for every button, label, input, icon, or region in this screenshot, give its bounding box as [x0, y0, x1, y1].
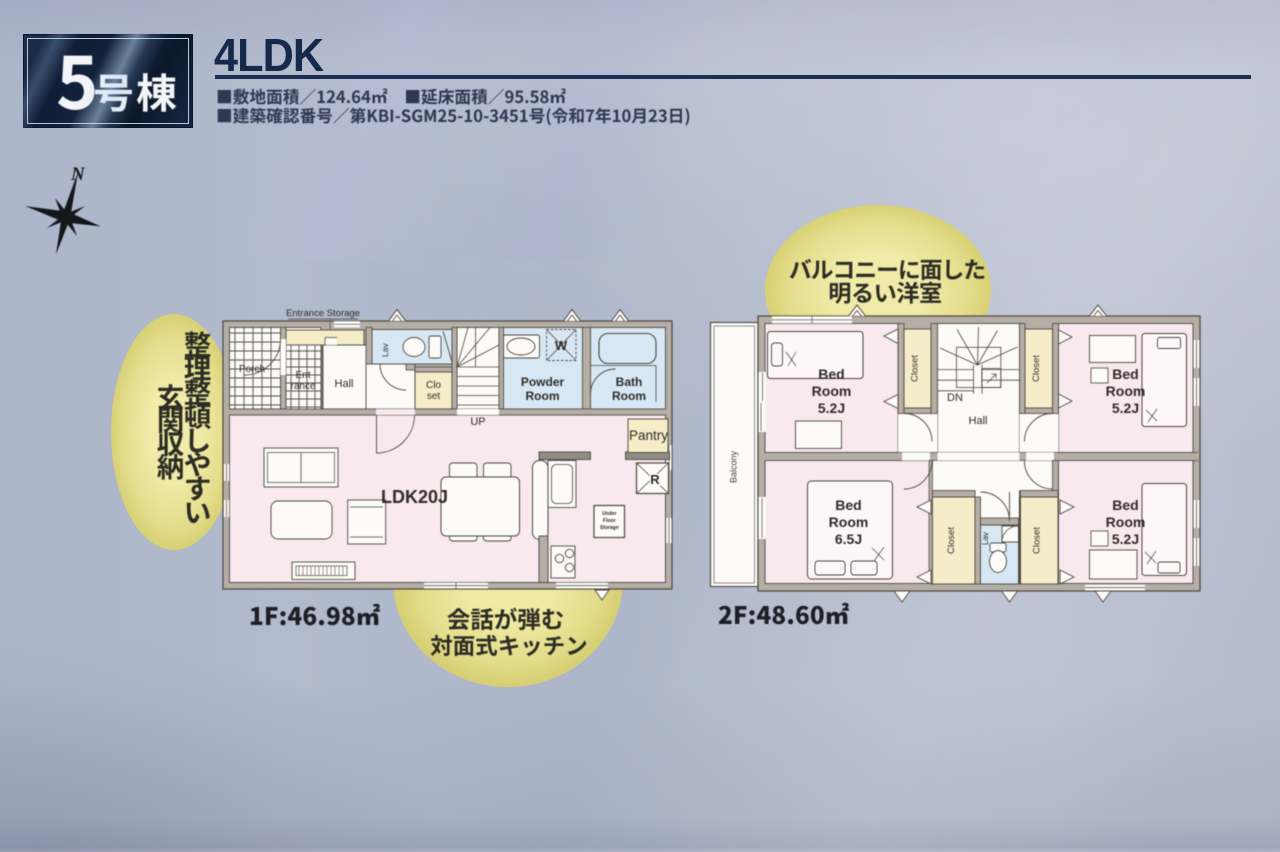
svg-text:Room: Room	[829, 514, 869, 530]
svg-text:rance: rance	[290, 381, 315, 392]
svg-text:5.2J: 5.2J	[818, 400, 845, 416]
svg-text:Porch: Porch	[239, 364, 265, 375]
svg-text:UP: UP	[470, 416, 485, 428]
svg-text:Bath: Bath	[616, 375, 643, 389]
svg-text:Hall: Hall	[335, 378, 354, 390]
svg-text:Lav: Lav	[380, 343, 390, 357]
svg-text:Closet: Closet	[1031, 355, 1042, 382]
svg-text:Bed: Bed	[818, 366, 844, 382]
svg-text:Closet: Closet	[910, 355, 921, 382]
svg-text:Clo: Clo	[426, 380, 441, 391]
svg-text:Entrance Storage: Entrance Storage	[286, 308, 360, 319]
svg-text:Closet: Closet	[946, 527, 957, 554]
svg-text:DN: DN	[947, 392, 963, 404]
svg-text:Pantry: Pantry	[629, 428, 668, 443]
svg-text:Room: Room	[1106, 383, 1146, 399]
svg-text:Bed: Bed	[835, 497, 861, 513]
svg-text:Hall: Hall	[969, 415, 988, 427]
svg-text:Room: Room	[812, 383, 852, 399]
svg-text:5.2J: 5.2J	[1112, 400, 1139, 416]
svg-text:W: W	[555, 338, 568, 353]
svg-text:Bed: Bed	[1112, 366, 1138, 382]
svg-text:Room: Room	[1106, 514, 1146, 530]
svg-text:Bed: Bed	[1112, 497, 1138, 513]
svg-text:set: set	[427, 391, 441, 402]
svg-text:6.5J: 6.5J	[835, 531, 862, 547]
svg-text:Lav: Lav	[981, 532, 990, 545]
svg-text:Storage: Storage	[600, 525, 619, 531]
svg-text:Ent: Ent	[295, 370, 310, 381]
svg-text:Powder: Powder	[521, 375, 565, 389]
svg-text:Under: Under	[602, 511, 617, 517]
svg-text:5.2J: 5.2J	[1112, 531, 1139, 547]
svg-text:Floor: Floor	[603, 518, 616, 524]
svg-text:Room: Room	[612, 389, 646, 403]
svg-text:LDK20J: LDK20J	[381, 487, 448, 507]
svg-text:Balcony: Balcony	[729, 450, 739, 483]
svg-text:Room: Room	[526, 389, 560, 403]
svg-text:R: R	[650, 472, 660, 487]
svg-text:Closet: Closet	[1031, 527, 1042, 554]
svg-text:N: N	[70, 164, 86, 185]
